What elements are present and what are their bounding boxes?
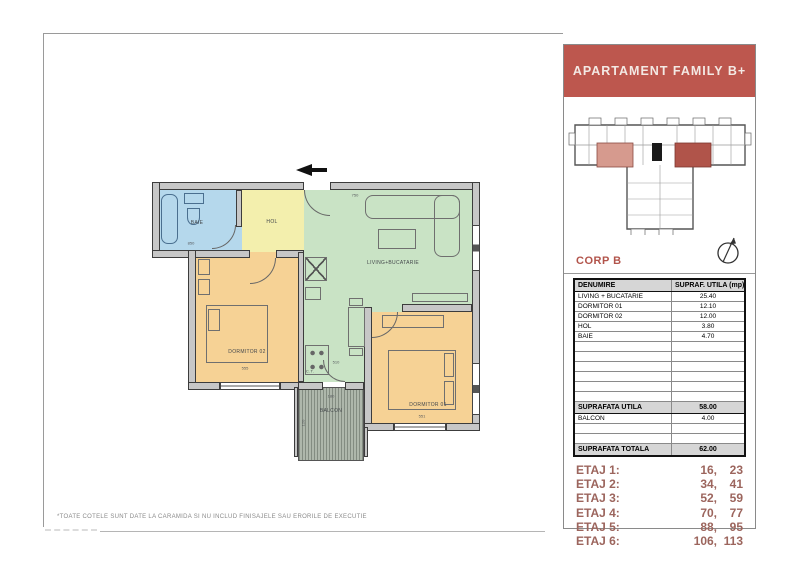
footer-rule: [100, 531, 545, 532]
sofa: [434, 195, 460, 257]
table-row: LIVING + BUCATARIE25.40: [574, 292, 745, 302]
room-label-dormitor-02: DORMITOR 02: [228, 349, 265, 355]
dimension-label: 180: [328, 394, 335, 399]
pillow: [444, 353, 454, 377]
wall: [188, 250, 196, 390]
apartment-title: APARTAMENT FAMILY B+: [573, 64, 746, 78]
bathroom-sink: [184, 193, 204, 204]
balcony-wall: [294, 387, 298, 457]
tv-unit: [412, 293, 468, 302]
table-row: BAIE4.70: [574, 332, 745, 342]
table-row-empty: [574, 352, 745, 362]
room-label-dormitor-01: DORMITOR 01: [409, 402, 446, 408]
floor-row: ETAJ 5:88,95: [576, 520, 743, 534]
floor-plan: BAIE HOL LIVING+BUCATARIE DORMITOR 02 DO…: [150, 165, 484, 480]
apartment-title-bar: APARTAMENT FAMILY B+: [564, 45, 755, 97]
room-label-baie: BAIE: [191, 220, 204, 226]
room-label-living: LIVING+BUCATARIE: [367, 260, 419, 266]
table-row-empty: [574, 342, 745, 352]
dimension-label: 120: [301, 420, 306, 427]
wall: [236, 190, 242, 227]
floor-row: ETAJ 2:34,41: [576, 477, 743, 491]
window: [394, 423, 446, 431]
bathtub: [161, 194, 178, 244]
coffee-table: [378, 229, 416, 249]
pillow: [208, 309, 220, 331]
table-row: DORMITOR 0212.00: [574, 312, 745, 322]
wall: [364, 307, 372, 427]
dimension-label: 750: [352, 193, 359, 198]
floor-row: ETAJ 1:16,23: [576, 463, 743, 477]
balcony-wall: [364, 427, 368, 457]
watermark-dashes: [45, 529, 97, 531]
table-row-subtotal: SUPRAFATA UTILA58.00: [574, 402, 745, 414]
compass-icon: [713, 235, 743, 267]
keyplan-unit-highlight-right: [675, 143, 711, 167]
wall: [298, 252, 304, 382]
nightstand: [198, 259, 210, 275]
kitchen-sink: [305, 287, 321, 300]
wardrobe: [382, 315, 444, 328]
sheet-frame-top: [43, 33, 563, 34]
room-label-balcon: BALCON: [320, 408, 342, 414]
floor-row: ETAJ 4:70,77: [576, 506, 743, 520]
table-row-total: SUPRAFATA TOTALA62.00: [574, 444, 745, 457]
keyplan-core: [652, 143, 662, 161]
wall: [364, 423, 394, 431]
floor-row: ETAJ 6:106,113: [576, 534, 743, 548]
footnote: *TOATE COTELE SUNT DATE LA CARAMIDA SI N…: [57, 514, 367, 520]
keyplan-unit-highlight-left: [597, 143, 633, 167]
wall: [152, 182, 160, 258]
keyplan: CORP B: [564, 103, 755, 273]
wall: [402, 304, 472, 312]
info-panel: APARTAMENT FAMILY B+: [563, 44, 756, 529]
wall: [298, 382, 323, 390]
dimension-label: 510: [333, 360, 340, 365]
col-header-denumire: DENUMIRE: [574, 279, 671, 292]
wall: [152, 250, 250, 258]
dimension-label: 551: [419, 414, 426, 419]
table-row-empty: [574, 362, 745, 372]
wall: [152, 182, 304, 190]
wall: [188, 382, 220, 390]
floor-list: ETAJ 1:16,23 ETAJ 2:34,41 ETAJ 3:52,59 E…: [564, 459, 755, 548]
room-label-centrala: C.T.: [306, 369, 314, 374]
area-table: DENUMIRE SUPRAF. UTILA (mp) LIVING + BUC…: [573, 278, 746, 457]
chair: [349, 348, 363, 356]
table-row-empty: [574, 372, 745, 382]
dimension-label: 555: [242, 366, 249, 371]
window: [472, 225, 480, 271]
area-table-wrap: DENUMIRE SUPRAF. UTILA (mp) LIVING + BUC…: [564, 273, 755, 459]
corp-label: CORP B: [576, 255, 622, 267]
table-row-empty: [574, 382, 745, 392]
wall: [446, 423, 480, 431]
table-row-empty: [574, 392, 745, 402]
table-row: BALCON4.00: [574, 414, 745, 424]
north-arrow-icon: [296, 163, 328, 177]
table-row: HOL3.80: [574, 322, 745, 332]
chair: [349, 298, 363, 306]
fridge: [305, 257, 327, 281]
dimension-label: 850: [188, 241, 195, 246]
floor-row: ETAJ 3:52,59: [576, 491, 743, 505]
window: [220, 382, 280, 390]
dining-table: [348, 307, 365, 347]
wall: [330, 182, 480, 190]
table-row-empty: [574, 424, 745, 434]
wall: [345, 382, 364, 390]
table-row-empty: [574, 434, 745, 444]
room-label-hol: HOL: [266, 219, 277, 225]
table-row: DORMITOR 0112.10: [574, 302, 745, 312]
sheet-frame-left: [43, 33, 44, 527]
window: [472, 363, 480, 415]
col-header-suprafata: SUPRAF. UTILA (mp): [671, 279, 745, 292]
nightstand: [198, 279, 210, 295]
building-keyplan: [567, 103, 753, 235]
